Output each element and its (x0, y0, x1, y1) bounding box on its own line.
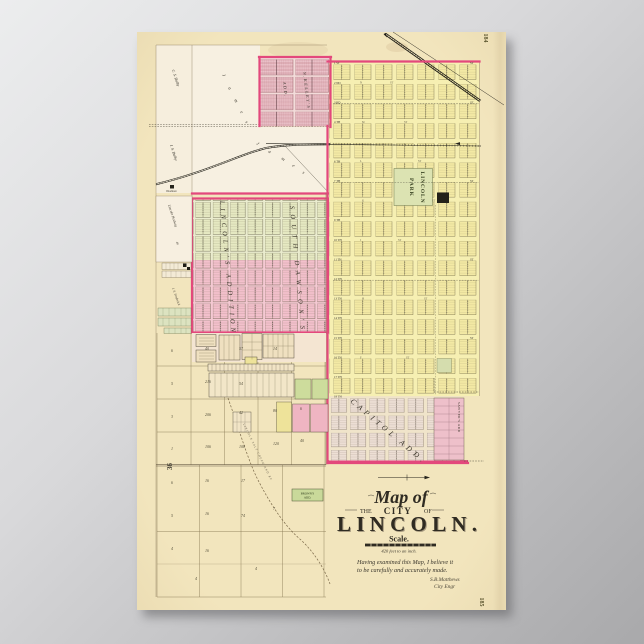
svg-text:6: 6 (171, 480, 173, 485)
svg-text:42: 42 (239, 410, 243, 415)
svg-text:106: 106 (205, 444, 211, 449)
svg-text:36: 36 (166, 463, 174, 471)
svg-text:54: 54 (239, 381, 243, 386)
svg-text:4: 4 (195, 576, 197, 581)
svg-text:5: 5 (171, 381, 173, 386)
svg-text:Having examined this Map, I be: Having examined this Map, I believe it (356, 559, 453, 566)
svg-text:ST: ST (404, 121, 408, 124)
svg-text:13 TH: 13 TH (334, 297, 343, 301)
svg-text:4 TH: 4 TH (334, 120, 341, 124)
svg-text:40: 40 (205, 346, 209, 351)
svg-text:ST: ST (470, 257, 474, 261)
svg-text:16: 16 (205, 478, 209, 483)
svg-text:ST: ST (470, 61, 474, 65)
svg-text:ST: ST (432, 200, 436, 203)
svg-text:ST: ST (424, 298, 428, 301)
svg-text:74: 74 (241, 513, 245, 518)
svg-text:12 TH: 12 TH (334, 277, 343, 281)
svg-text:ADD.: ADD. (304, 496, 311, 500)
svg-text:N: N (360, 82, 362, 85)
svg-text:108: 108 (239, 444, 245, 449)
svg-text:6: 6 (300, 406, 302, 411)
svg-text:Woodlawn: Woodlawn (166, 190, 178, 193)
svg-text:185: 185 (478, 598, 484, 607)
svg-text:10 TH: 10 TH (334, 238, 343, 242)
svg-text:L: L (360, 160, 362, 163)
svg-text:40: 40 (300, 438, 304, 443)
svg-text:16 TH: 16 TH (334, 355, 343, 359)
svg-text:H: H (362, 298, 364, 301)
svg-text:SAWYER'S ADD: SAWYER'S ADD (457, 402, 461, 433)
svg-text:216: 216 (205, 379, 211, 384)
svg-text:18 TH: 18 TH (334, 395, 343, 399)
svg-text:4: 4 (171, 546, 173, 551)
svg-text:S.B.Matthews: S.B.Matthews (430, 577, 460, 583)
svg-text:ST: ST (418, 160, 422, 163)
svg-text:17 TH: 17 TH (334, 375, 343, 379)
svg-text:4: 4 (255, 566, 257, 571)
svg-text:ST: ST (398, 239, 402, 242)
svg-text:15 TH: 15 TH (334, 336, 343, 340)
svg-text:1: 1 (171, 446, 173, 451)
svg-text:Scale.: Scale. (389, 535, 409, 544)
svg-text:420 feet to an inch.: 420 feet to an inch. (381, 549, 416, 554)
svg-text:to be carefully and accurately: to be carefully and accurately made. (357, 567, 448, 574)
svg-text:14 TH: 14 TH (334, 316, 343, 320)
svg-text:184: 184 (482, 34, 488, 43)
svg-text:ST: ST (406, 356, 410, 359)
svg-text:6 TH: 6 TH (334, 159, 341, 163)
svg-text:16: 16 (205, 548, 209, 553)
svg-text:80: 80 (273, 408, 277, 413)
svg-text:ST: ST (470, 336, 474, 340)
svg-text:PARK: PARK (408, 178, 414, 197)
svg-text:16: 16 (205, 511, 209, 516)
svg-text:9 TH: 9 TH (334, 218, 341, 222)
svg-text:2 ND: 2 ND (334, 81, 341, 85)
svg-text:K: K (362, 200, 364, 203)
svg-text:ST: ST (390, 82, 394, 85)
svg-text:Map of: Map of (373, 487, 430, 507)
svg-text:1 ST: 1 ST (334, 61, 340, 65)
svg-text:206: 206 (205, 412, 211, 417)
svg-text:3: 3 (171, 414, 173, 419)
svg-text:6: 6 (171, 348, 173, 353)
svg-text:5: 5 (171, 513, 173, 518)
svg-text:14: 14 (273, 346, 277, 351)
svg-text:LINCOLN: LINCOLN (419, 172, 425, 204)
svg-text:11 TH: 11 TH (334, 257, 342, 261)
svg-text:City Engr: City Engr (434, 584, 456, 590)
svg-text:120: 120 (273, 441, 279, 446)
